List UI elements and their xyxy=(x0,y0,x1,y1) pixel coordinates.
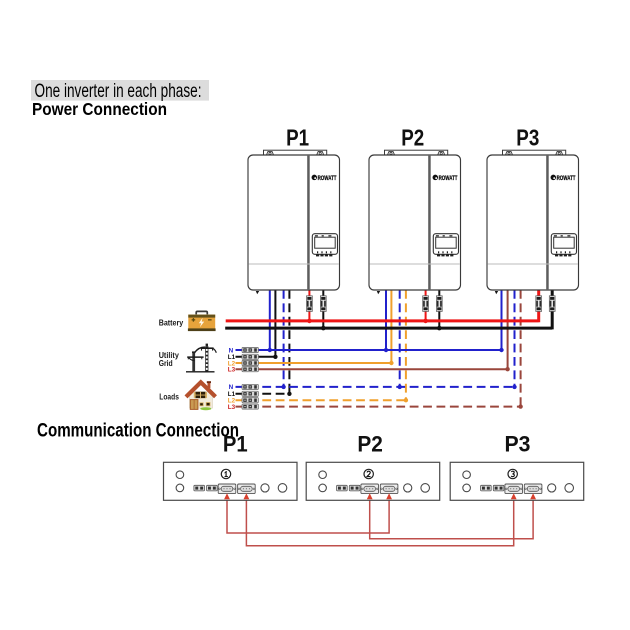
svg-text:L3: L3 xyxy=(228,367,236,374)
svg-text:P3: P3 xyxy=(505,432,531,457)
svg-text:Loads: Loads xyxy=(159,392,179,402)
svg-text:P1: P1 xyxy=(223,432,248,457)
svg-text:L3: L3 xyxy=(228,404,236,411)
svg-text:P2: P2 xyxy=(357,432,383,457)
svg-text:Power Connection: Power Connection xyxy=(32,99,167,119)
svg-text:Battery: Battery xyxy=(159,317,184,327)
svg-text:P3: P3 xyxy=(516,124,539,150)
svg-text:Communication Connection: Communication Connection xyxy=(37,420,239,441)
svg-text:P1: P1 xyxy=(286,124,309,150)
svg-text:P2: P2 xyxy=(401,124,424,150)
svg-text:Grid: Grid xyxy=(159,358,173,368)
